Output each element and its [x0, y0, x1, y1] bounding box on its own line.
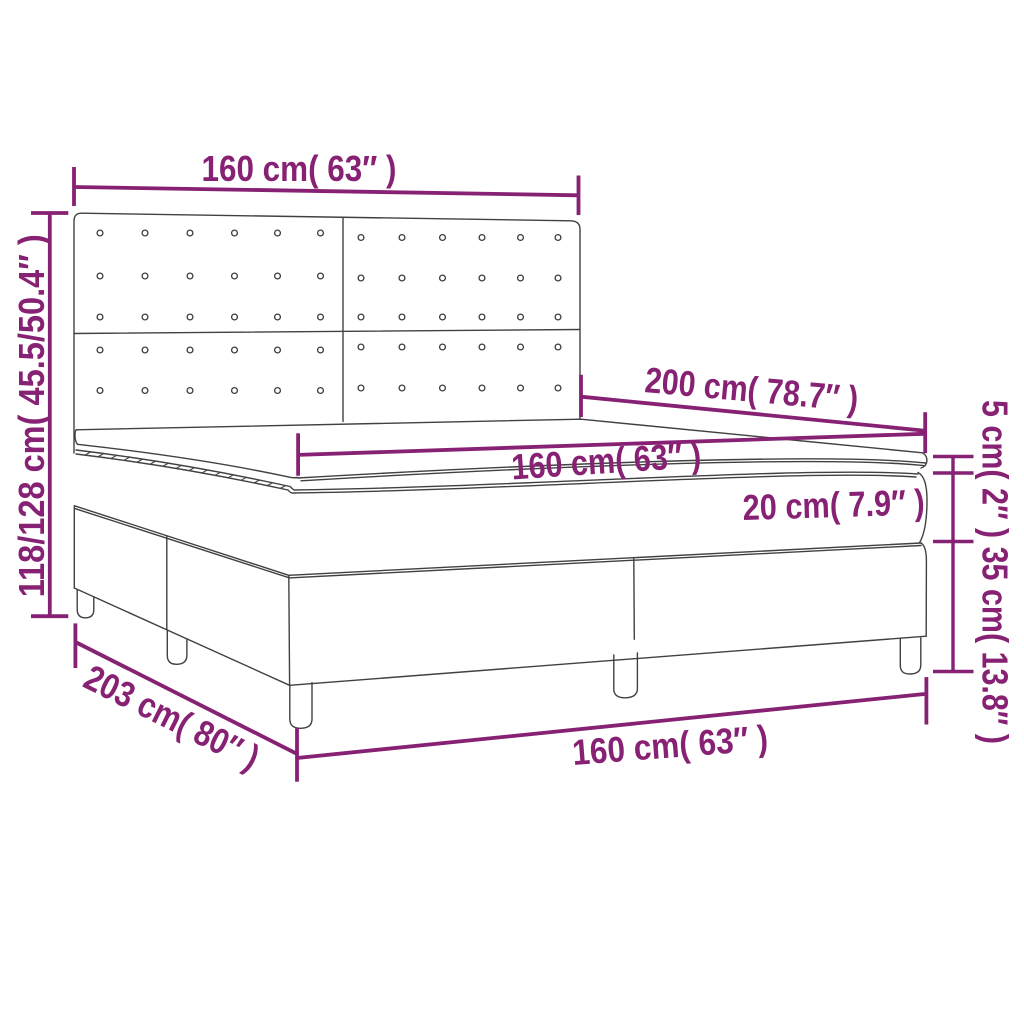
svg-text:203 cm( 80″ ): 203 cm( 80″ ) — [78, 656, 266, 777]
svg-text:5 cm( 2″ ) 35 cm( 13.8″ ): 5 cm( 2″ ) 35 cm( 13.8″ ) — [975, 400, 1016, 744]
svg-text:20 cm( 7.9″ ): 20 cm( 7.9″ ) — [742, 481, 925, 528]
svg-text:160 cm( 63″ ): 160 cm( 63″ ) — [202, 148, 397, 189]
svg-text:118/128 cm( 45.5/50.4″ ): 118/128 cm( 45.5/50.4″ ) — [11, 234, 52, 597]
svg-text:200 cm( 78.7″ ): 200 cm( 78.7″ ) — [643, 359, 860, 419]
